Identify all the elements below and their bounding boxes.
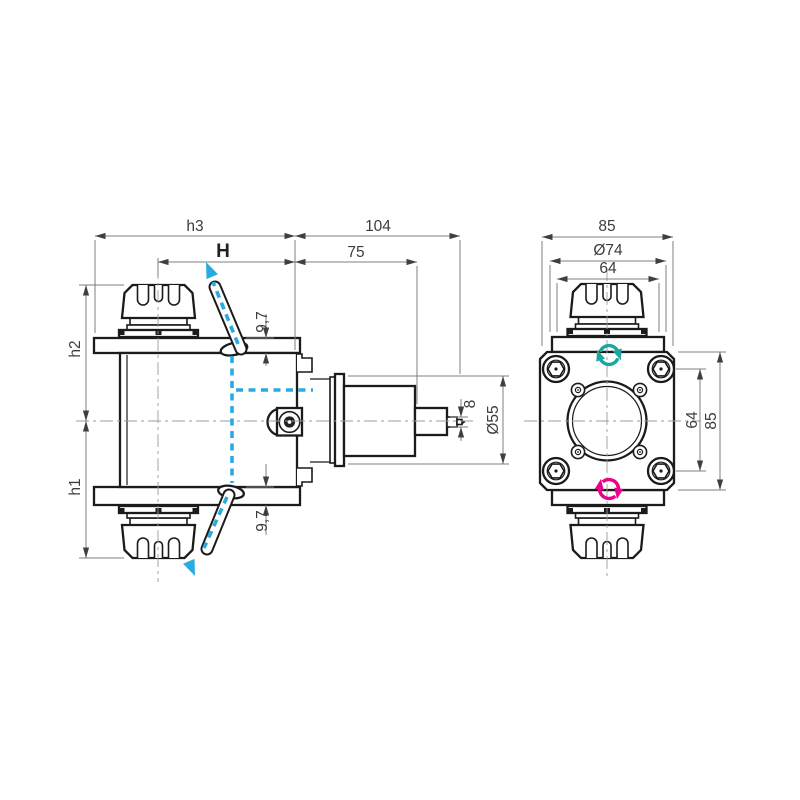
dim-85-top-label: 85 — [598, 218, 615, 235]
spindle-tip — [447, 417, 457, 427]
face-screw-bottom-left — [571, 445, 584, 458]
corner-bolt-top-left — [543, 356, 569, 382]
dim-dia55-label: Ø55 — [485, 405, 502, 434]
coolant-flow-down-arrow — [183, 559, 201, 579]
dim-85-right-label: 85 — [703, 412, 720, 429]
key-tab-top — [297, 354, 312, 372]
clamp-screw-center — [288, 420, 292, 424]
face-screw-bottom-right — [633, 445, 646, 458]
technical-drawing-canvas: h3 104 H 75 9,7 9,7 8 Ø55 h2 h1 85 Ø74 6… — [0, 0, 800, 800]
dim-h2-label: h2 — [67, 340, 84, 357]
spindle-tip-point — [462, 420, 466, 425]
corner-bolt-top-right — [648, 356, 674, 382]
side-view — [94, 285, 466, 558]
dim-64-top-label: 64 — [599, 260, 617, 277]
spindle-housing — [344, 386, 415, 456]
face-screw-top-right — [633, 383, 646, 396]
dim-8-label: 8 — [462, 400, 479, 409]
coolant-flow-up-arrow — [200, 260, 218, 280]
spindle-tip-end — [457, 420, 462, 425]
dim-h1-label: h1 — [67, 478, 84, 495]
key-tab-bottom — [297, 468, 312, 486]
er-collet-bottom — [119, 506, 199, 558]
drawing-svg: h3 104 H 75 9,7 9,7 8 Ø55 h2 h1 85 Ø74 6… — [0, 0, 800, 800]
dim-H-label: H — [216, 241, 230, 262]
er-collet-top — [119, 285, 199, 337]
dim-97-top-label: 9,7 — [254, 311, 271, 333]
dim-104-label: 104 — [365, 218, 391, 235]
corner-bolt-bottom-left — [543, 458, 569, 484]
bottom-clamp-plate — [94, 487, 300, 505]
dim-h3-label: h3 — [186, 218, 203, 235]
flange-ring-2 — [335, 374, 344, 466]
top-clamp-plate — [94, 338, 300, 353]
spindle-step — [415, 408, 447, 435]
face-screw-top-left — [571, 383, 584, 396]
corner-bolt-bottom-right — [648, 458, 674, 484]
dim-75-label: 75 — [347, 244, 364, 261]
dim-dia74-label: Ø74 — [593, 242, 623, 259]
dim-97-bottom-label: 9,7 — [254, 510, 271, 532]
dim-64-right-label: 64 — [684, 411, 701, 429]
